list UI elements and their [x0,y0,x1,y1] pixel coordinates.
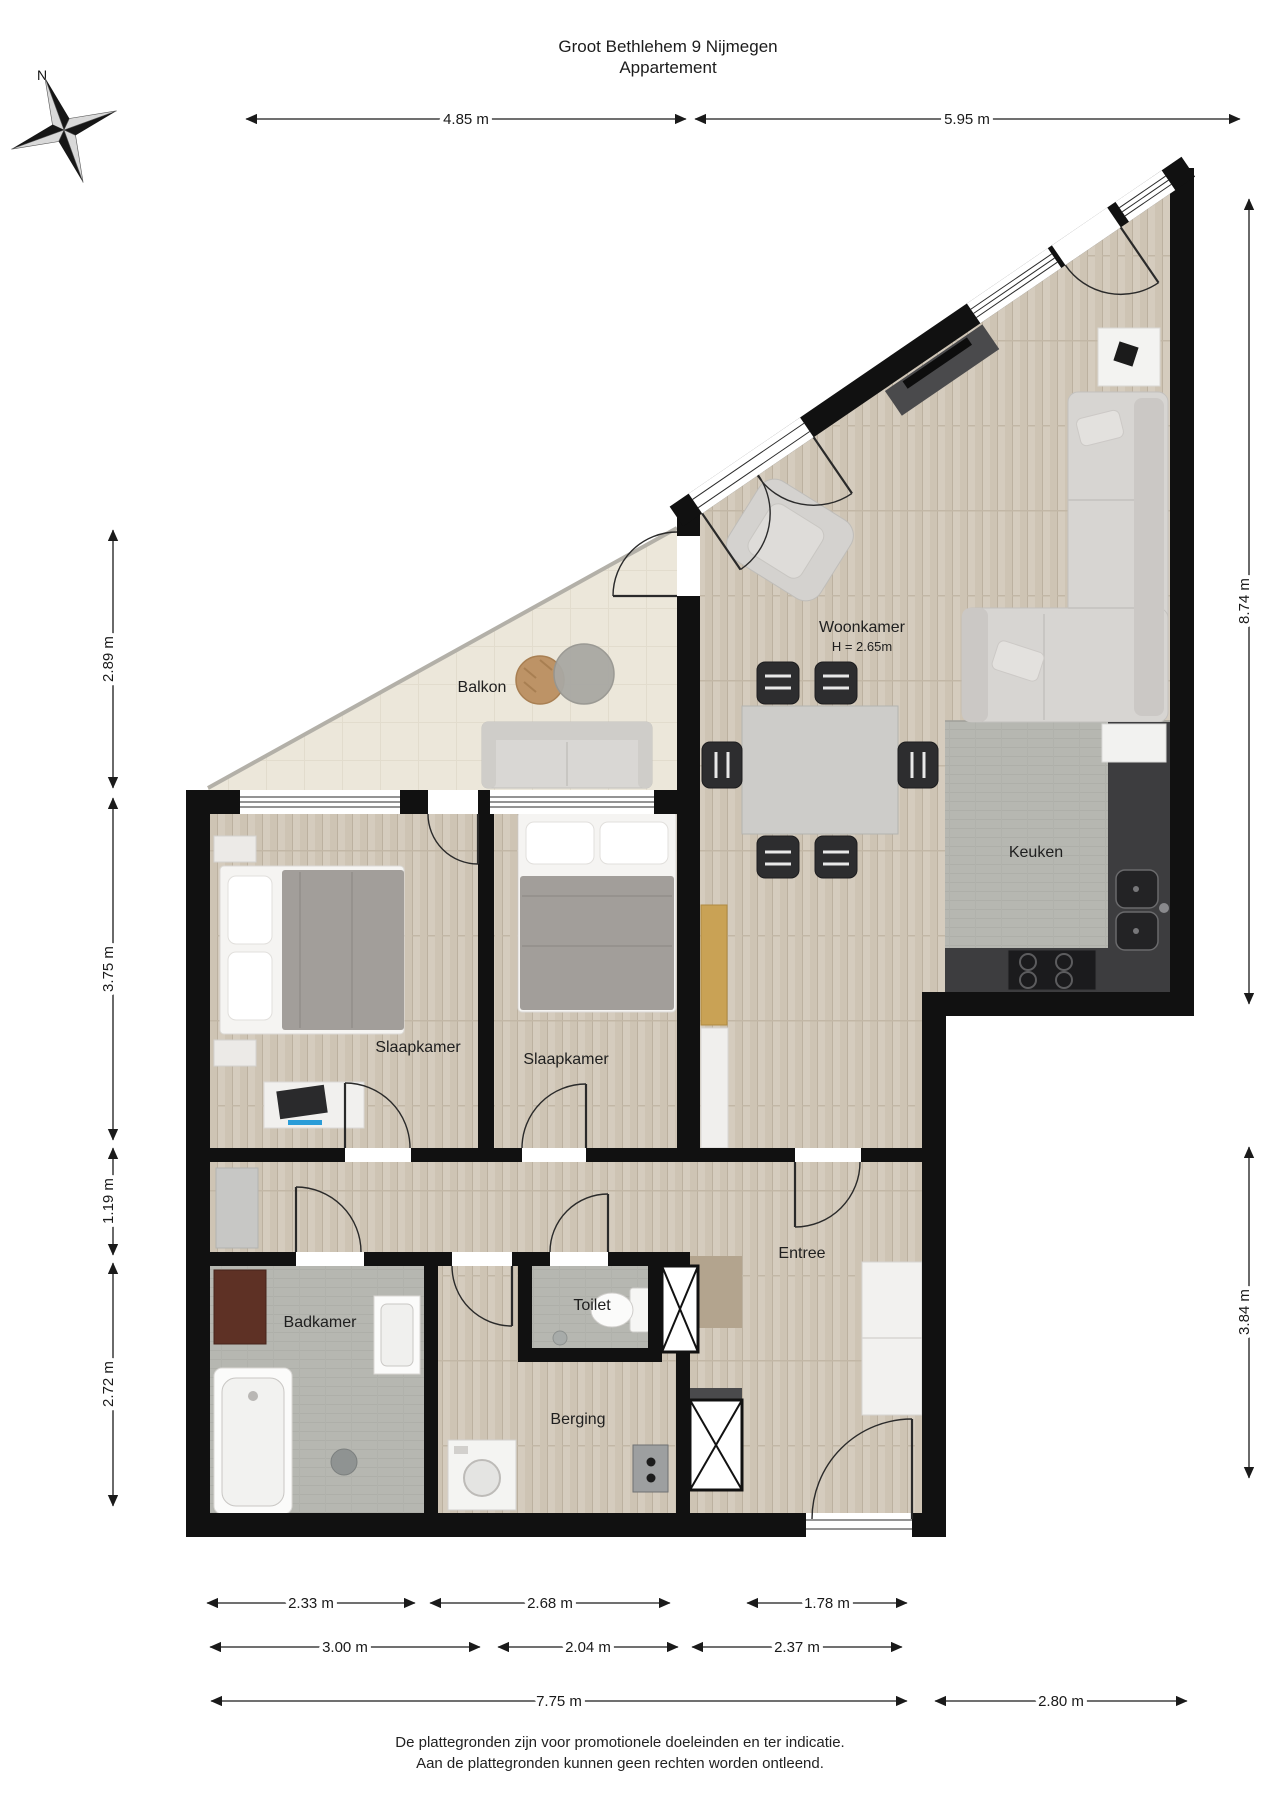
label-woonkamer: Woonkamer [819,619,906,636]
floorplan-page: Groot Bethlehem 9 Nijmegen Appartement N [0,0,1280,1810]
dim-bottom3-1: 7.75 m [536,1693,582,1710]
plan-title: Groot Bethlehem 9 Nijmegen Appartement [558,37,777,77]
side-table [1098,328,1160,386]
dim-bottom1-1: 2.33 m [288,1595,334,1612]
bed-middle [518,812,676,1012]
disclaimer-line-2: Aan de plattegronden kunnen geen rechten… [416,1755,824,1772]
dim-bottom1-2: 2.68 m [527,1595,573,1612]
shaft-near-toilet [662,1266,698,1352]
bathtub [214,1368,292,1514]
dim-right-2: 3.84 m [1236,1289,1253,1335]
kitchen-stove [1008,950,1096,990]
dim-bottom1-3: 1.78 m [804,1595,850,1612]
label-keuken: Keuken [1009,844,1063,861]
label-woonkamer-height: H = 2.65m [832,639,892,654]
label-entree: Entree [778,1245,825,1262]
shaft-in-entree [690,1388,742,1490]
dim-bottom2-1: 3.00 m [322,1639,368,1656]
bathroom-sink [374,1296,420,1374]
entree-cabinet [862,1262,922,1415]
label-badkamer: Badkamer [284,1314,358,1331]
dim-left-1: 2.89 m [100,636,117,682]
label-toilet: Toilet [573,1297,611,1314]
title-line-2: Appartement [619,58,717,77]
wardrobe-white [701,1028,728,1148]
dim-left-4: 2.72 m [100,1361,117,1407]
balkon-sofa [482,722,652,788]
dim-top-1: 4.85 m [443,111,489,128]
dim-bottom2-3: 2.37 m [774,1639,820,1656]
disclaimer-line-1: De plattegronden zijn voor promotionele … [395,1734,844,1751]
bathroom-cabinet [214,1270,266,1344]
dim-right-1: 8.74 m [1236,578,1253,624]
desk-left-bedroom [264,1082,364,1128]
dim-bottom3-2: 2.80 m [1038,1693,1084,1710]
label-berging: Berging [550,1411,605,1428]
dim-bottom2-2: 2.04 m [565,1639,611,1656]
dim-left-3: 1.19 m [100,1178,117,1224]
label-slaapkamer-links: Slaapkamer [375,1039,461,1056]
title-line-1: Groot Bethlehem 9 Nijmegen [558,37,777,56]
wardrobe-tan [701,905,727,1025]
washing-machine [448,1440,516,1510]
electrical-panel [633,1445,668,1492]
floor-plan-svg: Groot Bethlehem 9 Nijmegen Appartement N [0,0,1280,1810]
bathroom-stool [331,1449,357,1475]
dim-left-2: 3.75 m [100,946,117,992]
dim-top-2: 5.95 m [944,111,990,128]
bed-left [214,836,404,1066]
label-slaapkamer-midden: Slaapkamer [523,1051,609,1068]
compass-rose-icon: N [0,58,136,202]
hallway-mat [216,1168,258,1248]
disclaimer: De plattegronden zijn voor promotionele … [395,1734,844,1772]
label-balkon: Balkon [458,679,507,696]
